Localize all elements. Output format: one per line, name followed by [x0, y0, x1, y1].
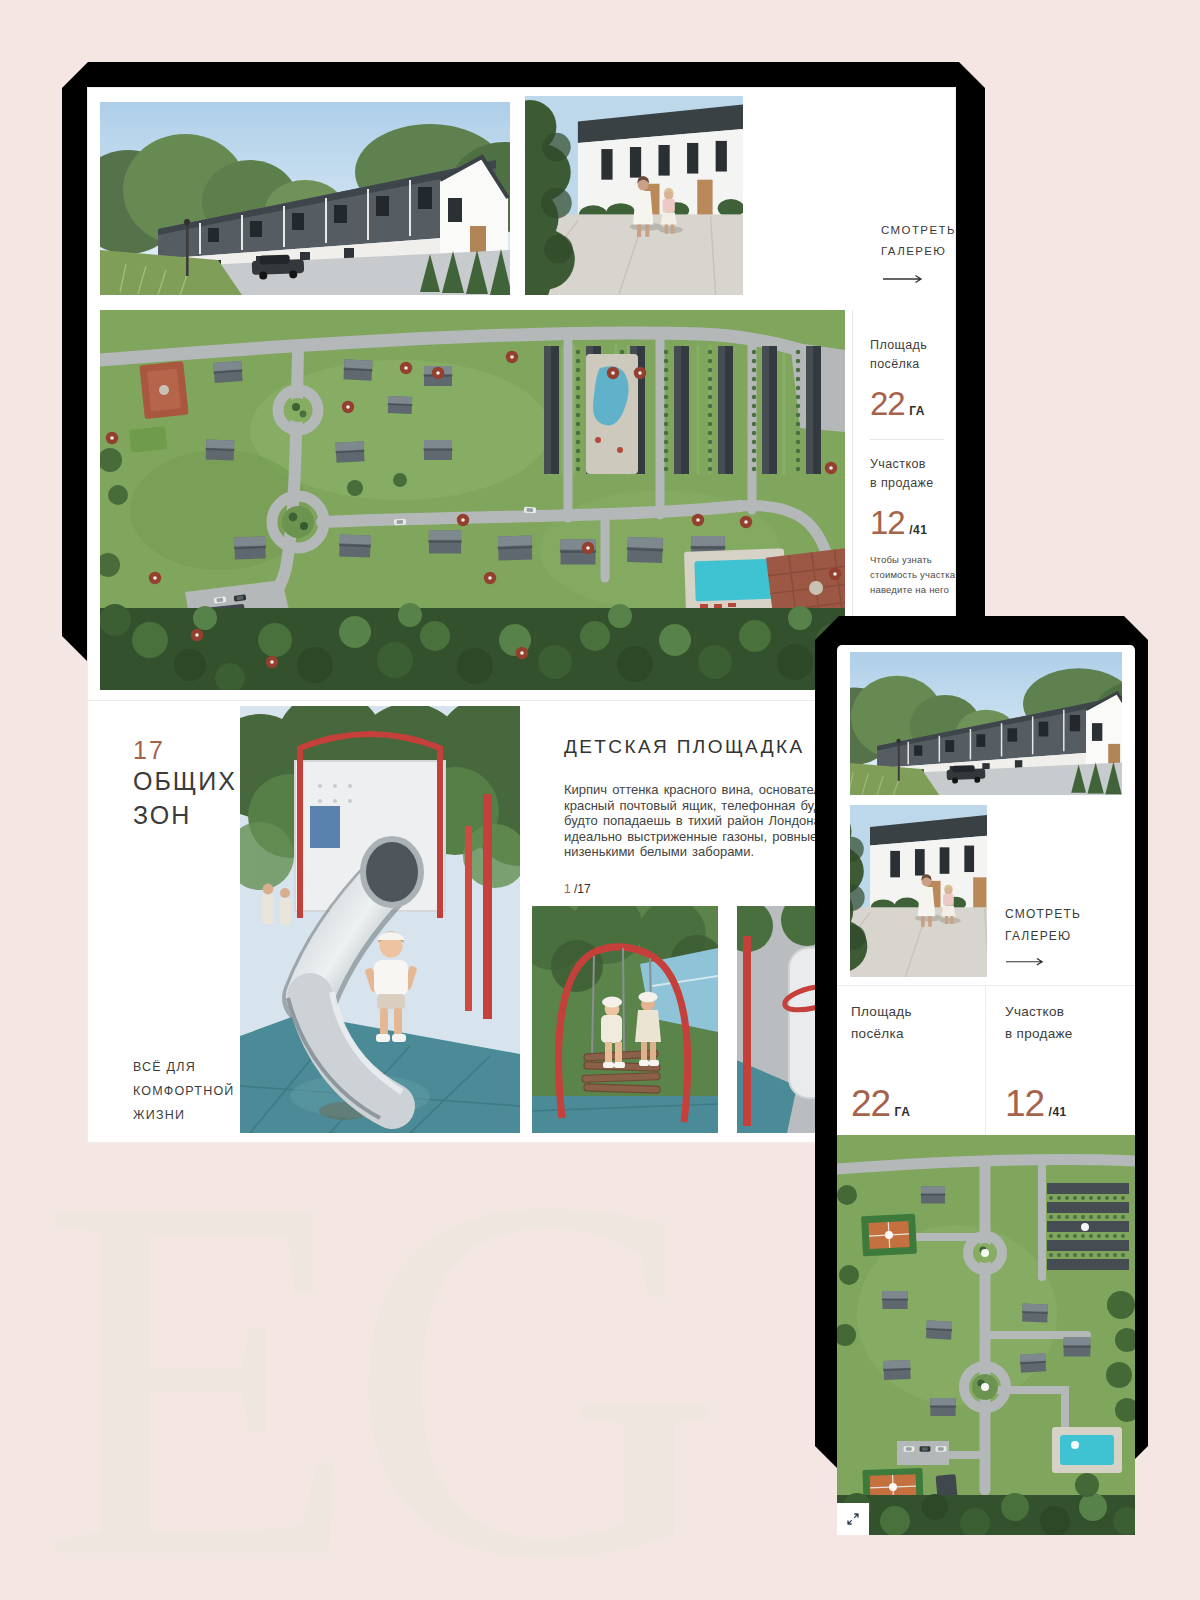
zones-count: 17: [133, 736, 237, 765]
see-gallery-link[interactable]: СМОТРЕТЬ ГАЛЕРЕЮ: [881, 220, 956, 261]
mobile-area-value: 22 ГА: [851, 1083, 910, 1125]
stats-divider: [870, 439, 944, 440]
zones-heading: 17 ОБЩИХ ЗОН: [133, 736, 237, 832]
see-gallery-label-line1: СМОТРЕТЬ: [881, 220, 956, 241]
mobile-masterplan-map[interactable]: [837, 1135, 1135, 1535]
mobile-see-gallery-arrow-icon[interactable]: [1005, 957, 1043, 967]
playground-photo-thumb-1[interactable]: [532, 906, 718, 1133]
mobile-stats-top-border: [837, 985, 1135, 986]
gallery-photo-street[interactable]: [525, 96, 743, 295]
mobile-gallery-photo-street[interactable]: [850, 805, 987, 977]
plots-value: 12 /41: [870, 504, 961, 542]
mobile-plots-value: 12 /41: [1005, 1083, 1067, 1125]
masterplan-hover-hint: Чтобы узнать стоимость участка наведите …: [870, 552, 956, 598]
zones-title-line2: ЗОН: [133, 799, 237, 833]
see-gallery-arrow-icon[interactable]: [881, 274, 923, 284]
phone-page: СМОТРЕТЬ ГАЛЕРЕЮ Площадь посёлка 22 ГА У…: [837, 645, 1135, 1535]
mobile-map-expand-button[interactable]: [837, 1503, 869, 1535]
gallery-photo-townhouses[interactable]: [100, 102, 510, 295]
playground-photo-main[interactable]: [240, 706, 520, 1133]
masterplan-map[interactable]: [100, 310, 845, 690]
zones-title-line1: ОБЩИХ: [133, 765, 237, 799]
mobile-stats-divider: [985, 985, 986, 1135]
area-value: 22 ГА: [870, 385, 961, 423]
see-gallery-label-line2: ГАЛЕРЕЮ: [881, 241, 956, 262]
expand-icon: [846, 1512, 860, 1526]
mobile-see-gallery-link[interactable]: СМОТРЕТЬ ГАЛЕРЕЮ: [1005, 903, 1081, 947]
area-label: Площадь посёлка: [870, 336, 961, 375]
zones-tagline: ВСЁ ДЛЯ КОМФОРТНОЙ ЖИЗНИ: [133, 1056, 235, 1127]
masterplan-stats-panel: Площадь посёлка 22 ГА Участков в продаже…: [852, 310, 961, 620]
plots-label: Участков в продаже: [870, 455, 961, 494]
mobile-plots-label: Участков в продаже: [1005, 1001, 1073, 1044]
presentation-canvas: EG СМОТРЕТЬ ГАЛЕРЕЮ Площадь посёлка: [0, 0, 1200, 1600]
brand-watermark: EG: [42, 1118, 711, 1600]
mobile-area-label: Площадь посёлка: [851, 1001, 912, 1044]
mobile-gallery-photo-townhouses[interactable]: [850, 652, 1122, 795]
